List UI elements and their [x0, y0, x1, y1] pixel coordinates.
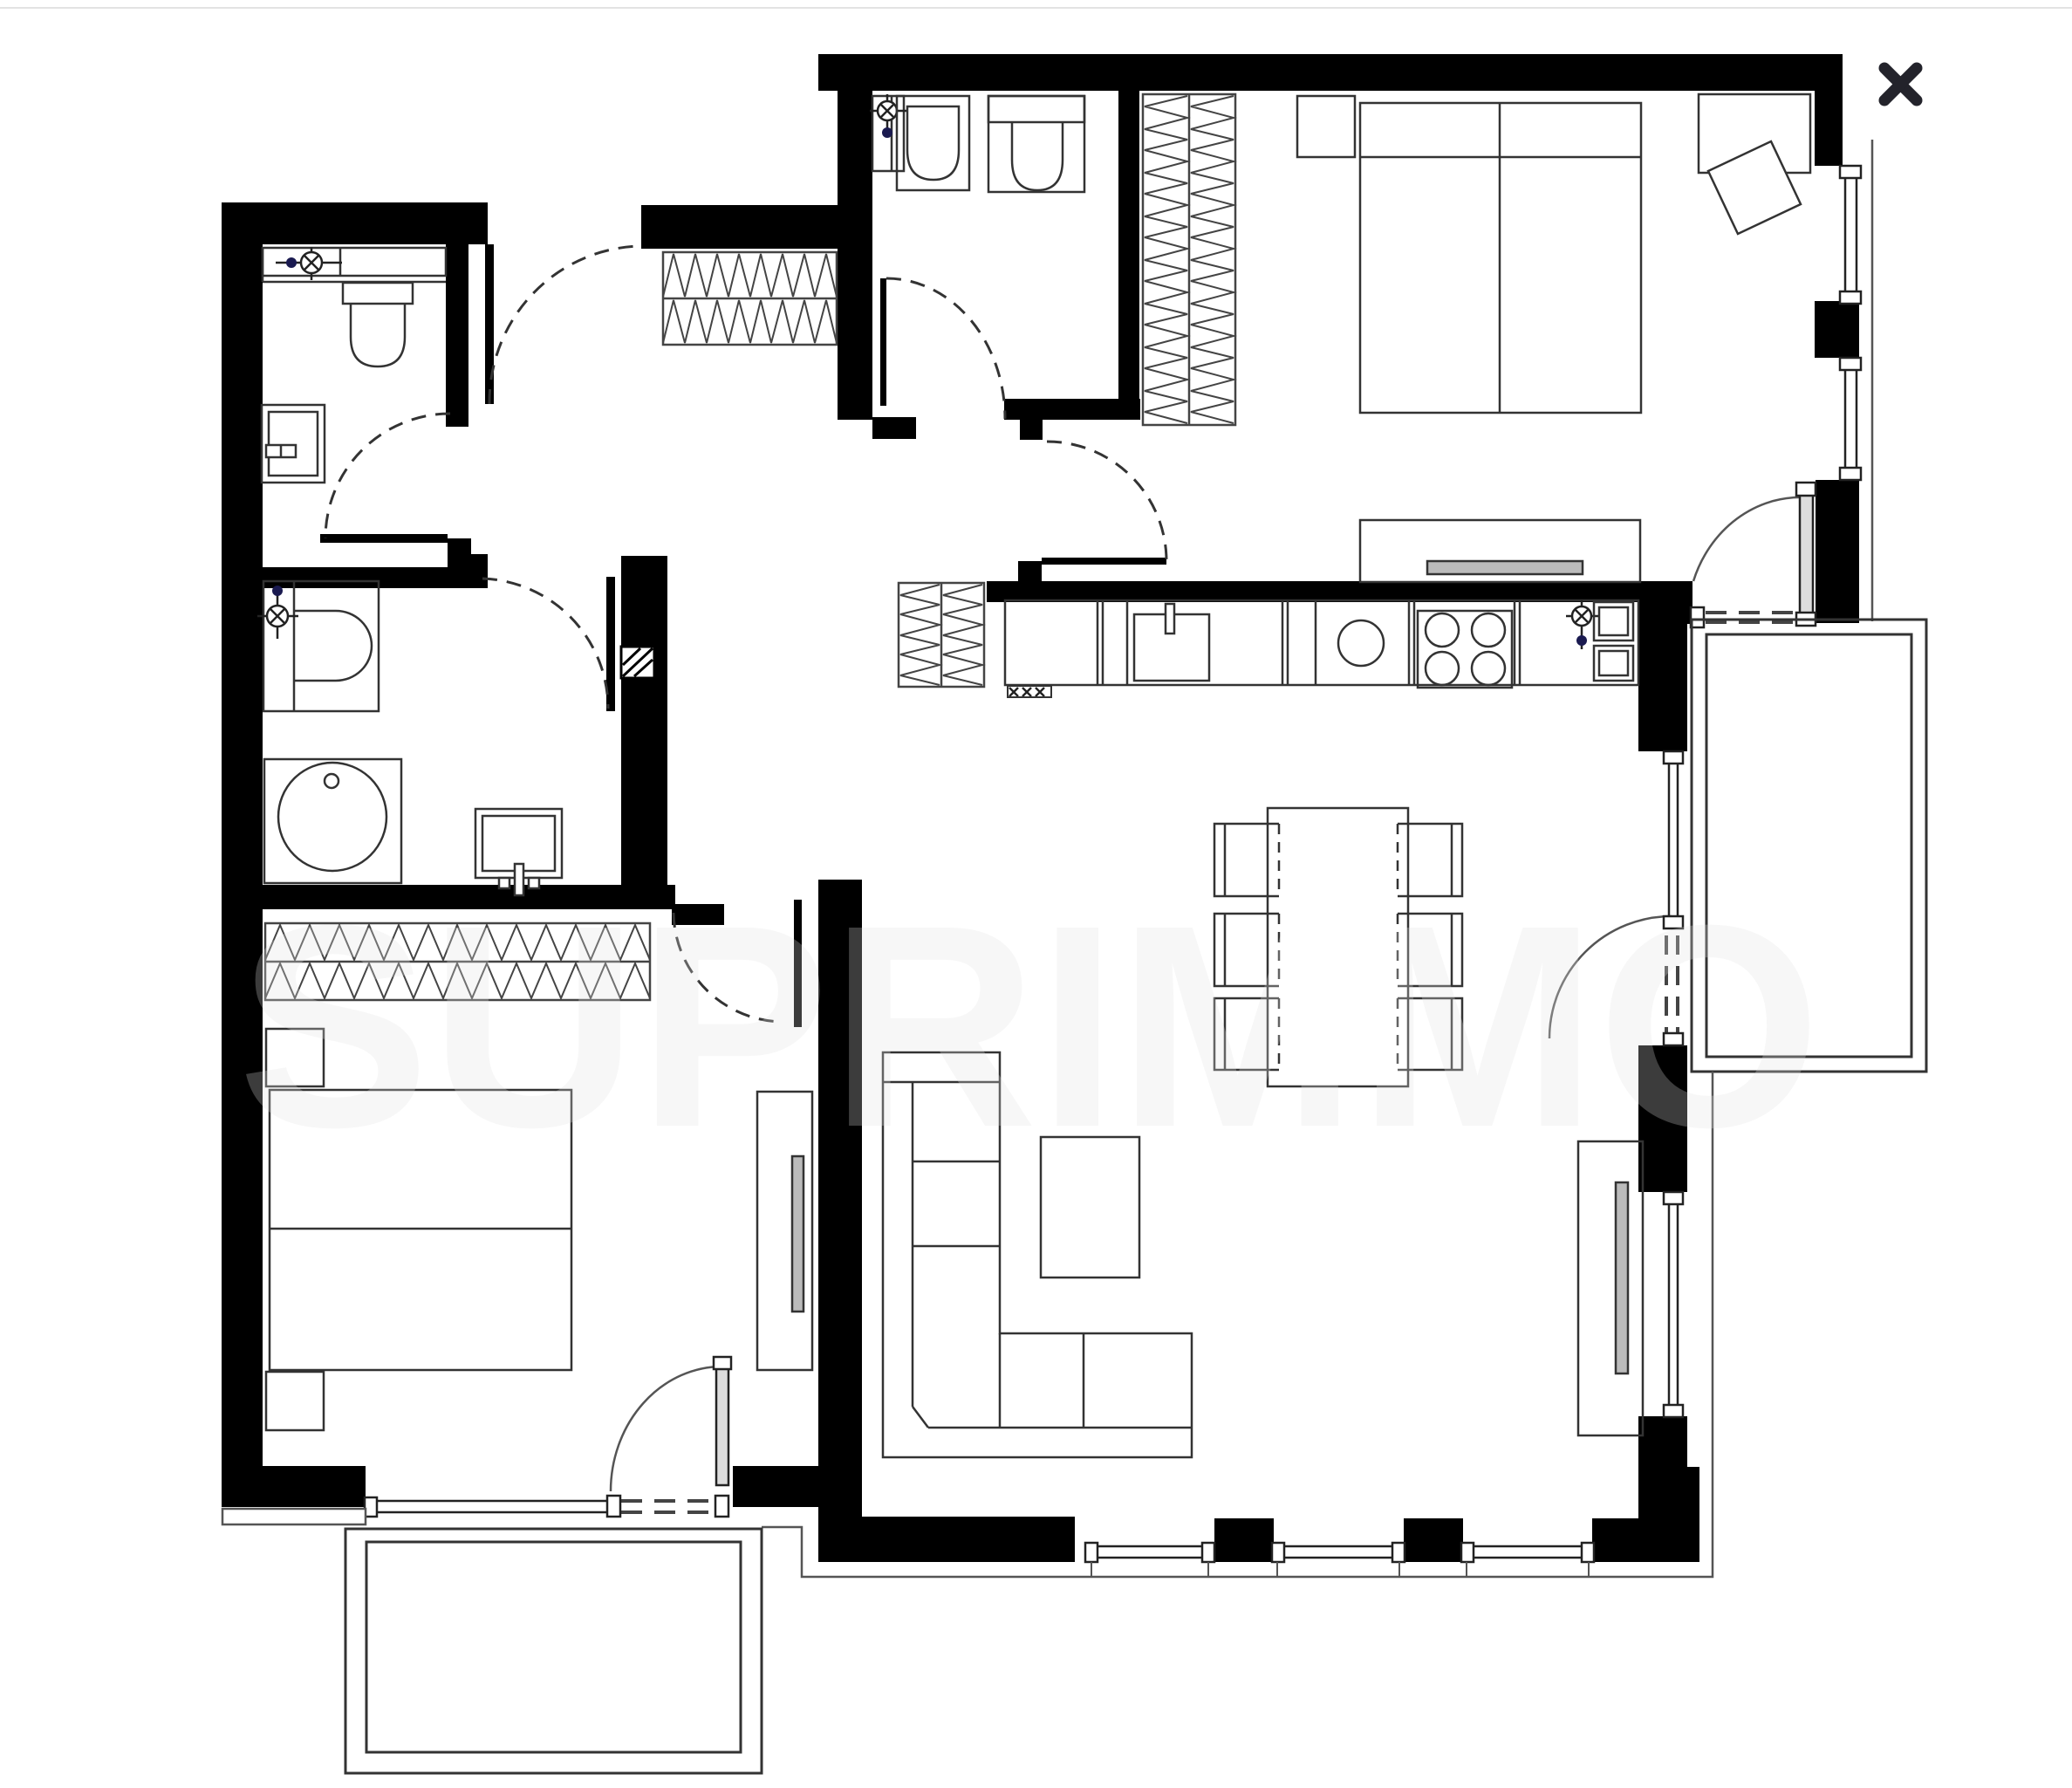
svg-text:SUPRIMMO: SUPRIMMO [238, 865, 1822, 1187]
